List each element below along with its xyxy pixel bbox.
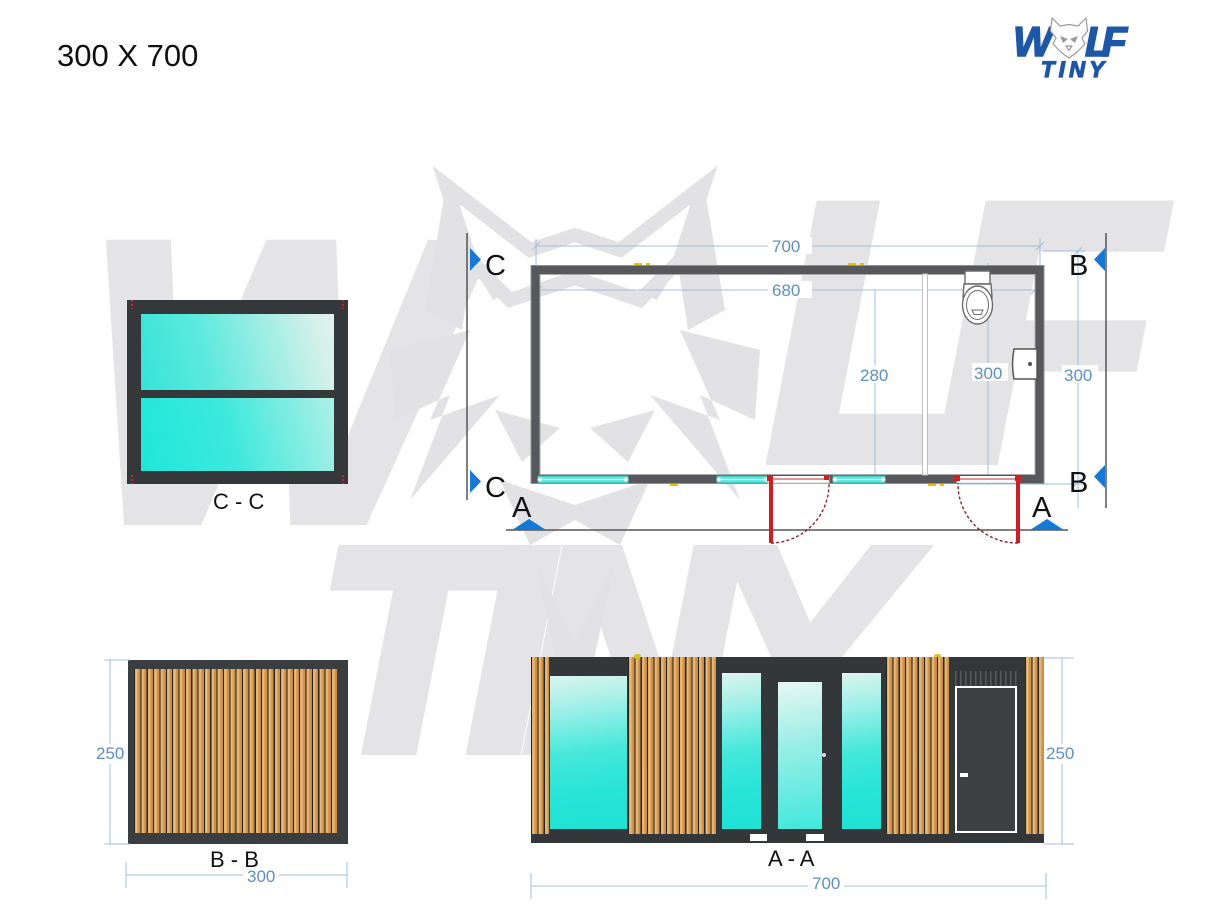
svg-text:680: 680 xyxy=(772,281,800,300)
svg-text:300: 300 xyxy=(1064,366,1092,385)
svg-text:B: B xyxy=(1069,467,1088,499)
svg-text:B: B xyxy=(1069,250,1088,282)
svg-text:A: A xyxy=(1032,492,1052,524)
svg-text:700: 700 xyxy=(772,237,800,256)
svg-text:280: 280 xyxy=(860,366,888,385)
svg-text:TINY: TINY xyxy=(1041,57,1106,82)
svg-text:300: 300 xyxy=(974,364,1002,383)
svg-text:C: C xyxy=(485,472,506,504)
svg-text:C: C xyxy=(485,250,506,282)
